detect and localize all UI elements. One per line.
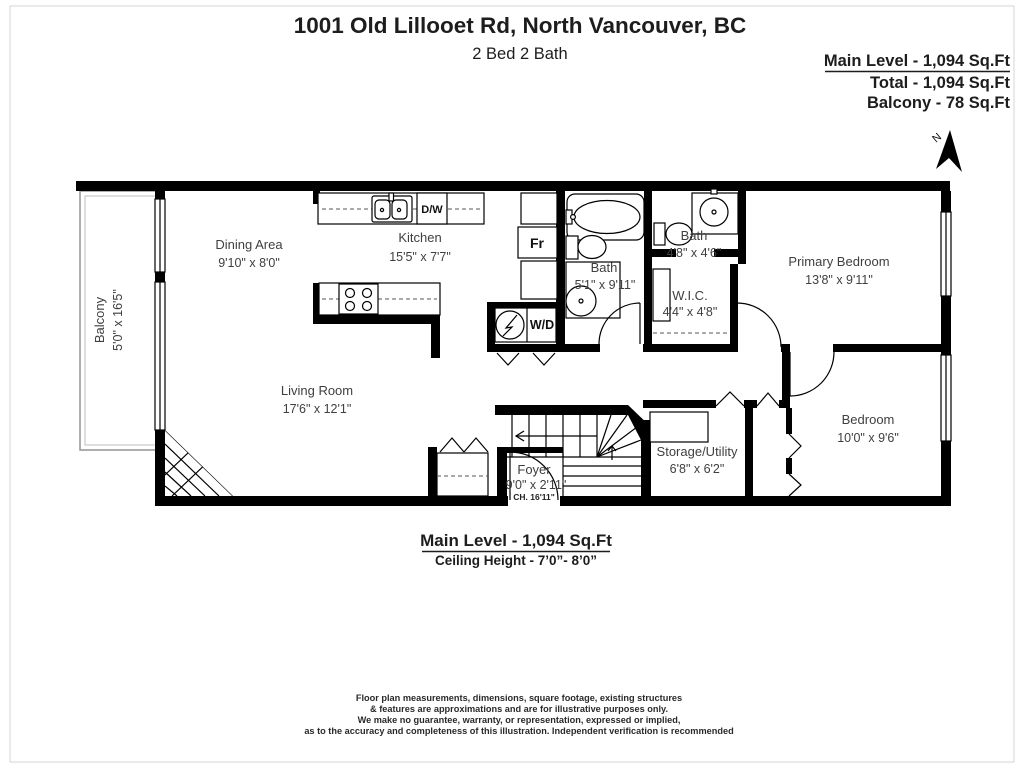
room-label-living: Living Room	[281, 383, 353, 398]
room-label-dining: Dining Area	[215, 237, 283, 252]
page-title: 1001 Old Lillooet Rd, North Vancouver, B…	[294, 13, 747, 38]
window-west-lower	[155, 282, 165, 430]
kitchen-sink-icon	[372, 193, 412, 222]
disclaimer-line: Floor plan measurements, dimensions, squ…	[356, 693, 682, 703]
entry-closet-chevron	[464, 438, 488, 452]
washer-dryer-label: W/D	[530, 318, 554, 332]
north-label: N	[930, 131, 944, 145]
cabinet-box	[521, 261, 557, 299]
room-dims-foyer: 9'0" x 2'11"	[506, 478, 567, 492]
room-dims-wic: 4'4" x 4'8"	[663, 305, 718, 319]
hall-opening-chevron	[757, 393, 779, 406]
doorway-chevrons	[440, 392, 779, 452]
stat-total: Total - 1,094 Sq.Ft	[870, 74, 1010, 92]
laundry-door-chevron	[533, 353, 555, 365]
window-primary-bedroom	[941, 212, 951, 296]
room-dims-storage: 6'8" x 6'2"	[670, 462, 725, 476]
room-label-bath-main: Bath	[591, 260, 618, 275]
room-label-bedroom: Bedroom	[842, 412, 895, 427]
footer-ceiling: Ceiling Height - 7’0”- 8’0”	[435, 553, 597, 568]
disclaimer-line: & features are approximations and are fo…	[370, 704, 668, 714]
disclaimer-line: as to the accuracy and completeness of t…	[304, 726, 733, 736]
area-stats: Main Level - 1,094 Sq.Ft Total - 1,094 S…	[824, 52, 1011, 112]
room-dims-bedroom: 10'0" x 9'6"	[837, 431, 899, 445]
window-bedroom	[941, 355, 951, 441]
room-label-balcony: Balcony	[92, 296, 107, 343]
room-label-storage: Storage/Utility	[657, 444, 738, 459]
room-ceiling-foyer: CH. 16'11"	[513, 492, 555, 502]
room-labels: Balcony 5'0" x 16'5" Dining Area 9'10" x…	[92, 228, 899, 502]
window-west-upper	[155, 199, 165, 272]
room-label-primary: Primary Bedroom	[788, 254, 889, 269]
room-dims-kitchen: 15'5" x 7'7"	[389, 250, 451, 264]
header: 1001 Old Lillooet Rd, North Vancouver, B…	[294, 13, 747, 63]
laundry-door-chevron	[497, 353, 519, 365]
room-label-bath-ensuite: Bath	[681, 228, 708, 243]
fridge-label: Fr	[530, 235, 545, 251]
washer-icon	[496, 311, 524, 339]
disclaimer-line: We make no guarantee, warranty, or repre…	[358, 715, 681, 725]
room-label-kitchen: Kitchen	[398, 230, 441, 245]
disclaimer: Floor plan measurements, dimensions, squ…	[304, 693, 733, 736]
toilet-icon	[566, 236, 606, 260]
bedroom-door	[790, 352, 834, 396]
stat-main-level: Main Level - 1,094 Sq.Ft	[824, 52, 1011, 70]
room-dims-balcony: 5'0" x 16'5"	[111, 289, 125, 351]
room-label-wic: W.I.C.	[672, 288, 707, 303]
bathtub-icon	[566, 194, 644, 240]
storage-opening-chevron	[716, 392, 744, 406]
room-dims-dining: 9'10" x 8'0"	[218, 256, 280, 270]
primary-bedroom-door	[737, 303, 781, 347]
entry-closet-chevron	[440, 438, 464, 452]
entry-closet	[437, 453, 488, 496]
stat-balcony: Balcony - 78 Sq.Ft	[867, 94, 1011, 112]
room-dims-primary: 13'8" x 9'11"	[805, 273, 873, 287]
north-arrow-icon: N	[930, 130, 962, 172]
dishwasher-label: D/W	[421, 204, 443, 216]
room-dims-bath-main: 5'1" x 9'11"	[575, 278, 636, 292]
room-dims-living: 17'6" x 12'1"	[283, 402, 352, 416]
laundry-closet: W/D	[495, 308, 556, 365]
room-dims-bath-ensuite: 4'8" x 4'6"	[667, 246, 722, 260]
footer: Main Level - 1,094 Sq.Ft Ceiling Height …	[420, 531, 612, 568]
fireplace-hatch	[165, 430, 233, 496]
floor-plan-sheet: 1001 Old Lillooet Rd, North Vancouver, B…	[0, 0, 1024, 768]
stove-icon	[339, 284, 378, 314]
storage-shelf	[650, 412, 708, 442]
room-label-foyer: Foyer	[517, 462, 551, 477]
footer-level: Main Level - 1,094 Sq.Ft	[420, 531, 612, 550]
page-subtitle: 2 Bed 2 Bath	[472, 45, 567, 63]
pantry-box	[521, 193, 557, 224]
